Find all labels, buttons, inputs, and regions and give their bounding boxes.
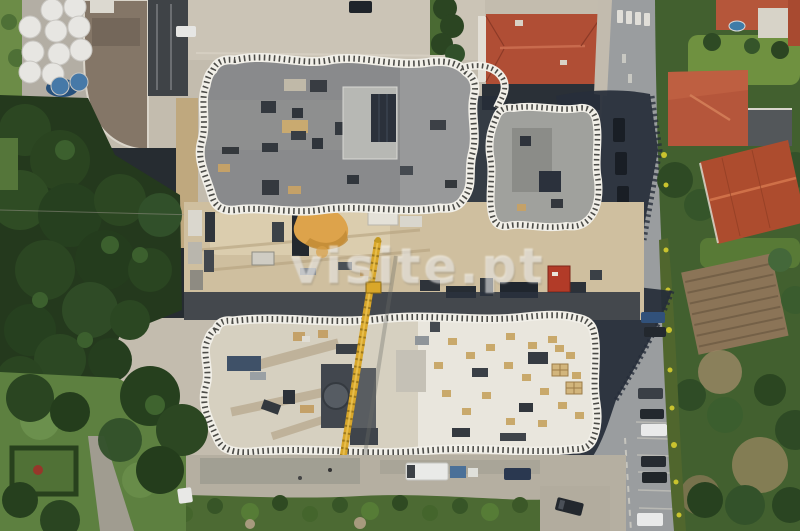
- swimming-pool: [729, 21, 745, 31]
- parked-car: [640, 409, 664, 419]
- vent: [262, 143, 278, 152]
- vent: [347, 175, 359, 184]
- material: [415, 336, 429, 345]
- skylight: [520, 136, 531, 146]
- parked-car: [641, 456, 666, 467]
- parked-car: [641, 312, 665, 323]
- parked-car: [638, 388, 663, 399]
- vent: [400, 166, 413, 175]
- crosswalk-bar: [617, 10, 623, 23]
- equipment: [528, 352, 548, 364]
- white-umbrella: [48, 43, 70, 65]
- dark-roof-wing: [148, 0, 188, 96]
- site-cabin: [252, 252, 274, 265]
- building-under-construction: [204, 300, 608, 475]
- watermark-text: visite.pt: [290, 238, 545, 295]
- road-dash: [628, 74, 632, 83]
- worker: [328, 468, 332, 472]
- parked-car: [615, 152, 627, 175]
- tree: [50, 392, 90, 432]
- tree: [110, 300, 150, 340]
- tree-highlight: [55, 140, 75, 160]
- dark-slab-zone: [350, 428, 378, 445]
- white-umbrella: [68, 16, 90, 38]
- annex-building: [489, 107, 598, 227]
- equipment: [500, 433, 526, 441]
- equipment: [452, 428, 470, 437]
- tree: [754, 374, 786, 406]
- completed-building: [200, 57, 505, 218]
- parked-car: [349, 1, 372, 13]
- vent: [222, 147, 239, 154]
- dirt-patch: [698, 350, 742, 394]
- equipment: [283, 390, 295, 404]
- white-umbrella: [19, 16, 41, 38]
- blue-crates: [450, 466, 466, 478]
- machinery: [570, 282, 586, 293]
- material-crate: [272, 222, 284, 242]
- white-umbrella: [22, 41, 44, 63]
- aerial-photo-canvas: visite.pt visite.pt: [0, 0, 800, 531]
- skylight: [310, 80, 327, 92]
- circular-form: [323, 383, 349, 409]
- shrub: [1, 14, 17, 30]
- white-umbrella: [19, 61, 41, 83]
- tree: [725, 485, 765, 525]
- tree: [687, 482, 723, 518]
- bush: [771, 41, 789, 59]
- parked-car: [642, 472, 667, 483]
- vent: [291, 131, 306, 140]
- formwork-panels: [400, 216, 422, 227]
- tree: [2, 482, 38, 518]
- tree: [138, 193, 182, 237]
- road-dash: [622, 54, 626, 63]
- bush: [703, 33, 721, 51]
- worker: [298, 476, 302, 480]
- blue-umbrella: [51, 77, 69, 95]
- tree-highlight: [101, 236, 119, 254]
- roof-seam: [170, 4, 172, 90]
- pallet: [318, 330, 328, 338]
- bright-gap: [0, 138, 18, 190]
- material: [250, 372, 266, 380]
- pallet: [300, 405, 314, 413]
- crosswalk-bar: [626, 11, 632, 24]
- red-container: [548, 266, 570, 292]
- white-umbrella: [70, 39, 92, 61]
- van-windshield: [407, 465, 415, 478]
- chimney: [560, 60, 567, 65]
- building-shadow: [200, 458, 360, 484]
- gray-shed-roof: [748, 108, 792, 146]
- vent: [551, 199, 563, 208]
- parked-car: [177, 487, 193, 504]
- tree: [94, 174, 146, 226]
- dirt-patch: [732, 437, 788, 493]
- formwork-stack: [188, 210, 202, 236]
- vent: [430, 120, 446, 130]
- material: [284, 79, 306, 91]
- parked-car: [641, 424, 667, 436]
- hvac-unit: [262, 180, 279, 195]
- equipment: [472, 368, 488, 377]
- tree: [88, 338, 132, 382]
- tree: [6, 374, 54, 422]
- material: [302, 336, 310, 342]
- parked-car: [613, 118, 625, 142]
- roof-structure: [90, 0, 114, 13]
- tree: [136, 446, 184, 494]
- crosswalk-bar: [644, 13, 650, 26]
- tree: [768, 248, 792, 272]
- red-bush: [33, 465, 43, 475]
- chimney: [515, 20, 523, 26]
- roof-seam: [156, 4, 158, 90]
- parked-car: [504, 468, 531, 480]
- tree-highlight: [77, 332, 93, 348]
- tree: [62, 282, 118, 338]
- roof-edge: [788, 0, 800, 46]
- stall-line: [637, 455, 670, 456]
- parked-car: [644, 327, 666, 337]
- white-eave: [478, 16, 486, 82]
- tree: [657, 162, 693, 198]
- pallet: [517, 204, 526, 211]
- equipment: [519, 403, 533, 412]
- blue-equipment: [227, 356, 261, 371]
- parked-car: [176, 26, 196, 37]
- vent: [445, 180, 457, 188]
- white-umbrella: [45, 20, 67, 42]
- scene-svg: visite.pt visite.pt: [0, 0, 800, 531]
- machinery: [590, 270, 602, 280]
- crosswalk-bar: [635, 12, 641, 25]
- blue-umbrella: [70, 73, 88, 91]
- stall-line: [639, 508, 673, 509]
- lawn-southwest: [0, 366, 208, 531]
- watermark: visite.pt visite.pt: [290, 238, 546, 297]
- stall-line: [636, 422, 668, 423]
- equipment: [336, 344, 358, 354]
- solar-array: [371, 94, 396, 142]
- white-crate: [468, 468, 478, 477]
- material-crate: [204, 250, 214, 272]
- skylight: [261, 101, 276, 113]
- vent: [312, 138, 323, 149]
- stall-line: [638, 490, 672, 491]
- tree: [98, 418, 142, 462]
- pallet: [288, 186, 301, 194]
- formwork-stack: [188, 242, 202, 264]
- pallet: [218, 164, 230, 172]
- material-crate: [205, 212, 215, 242]
- material-zone: [396, 350, 426, 392]
- tree-highlight: [132, 247, 148, 263]
- parked-car: [637, 513, 663, 526]
- white-umbrella: [64, 0, 86, 18]
- roof-shade: [92, 18, 140, 46]
- white-umbrella: [41, 0, 63, 21]
- solar-array: [539, 171, 561, 192]
- tree-highlight: [32, 292, 48, 308]
- vent: [292, 108, 303, 118]
- tree: [707, 397, 743, 433]
- bush: [744, 38, 760, 54]
- container-label: [552, 272, 558, 276]
- tree-highlight: [145, 395, 165, 415]
- tree: [15, 240, 75, 300]
- houses-east: [655, 0, 800, 531]
- formwork-stack: [190, 270, 203, 290]
- stall-line: [637, 438, 669, 439]
- tree: [674, 379, 706, 411]
